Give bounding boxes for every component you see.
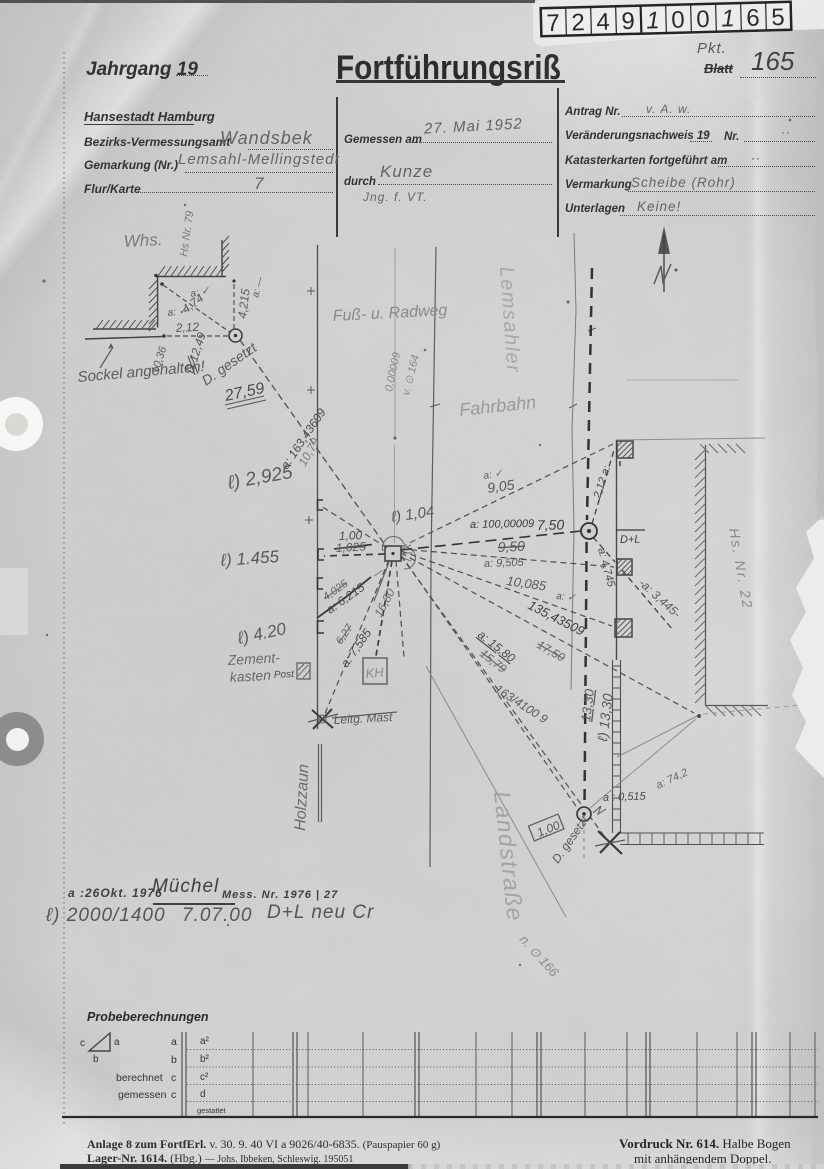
svg-text:a: a — [114, 1037, 120, 1048]
svg-text:c²: c² — [200, 1072, 209, 1083]
svg-text:b: b — [93, 1054, 99, 1065]
svg-text:gestattet: gestattet — [197, 1106, 227, 1115]
svg-text:c: c — [80, 1038, 85, 1049]
svg-text:c: c — [171, 1089, 176, 1101]
svg-text:gemessen: gemessen — [118, 1089, 167, 1101]
svg-text:b: b — [171, 1054, 177, 1066]
svg-text:b²: b² — [200, 1054, 210, 1065]
svg-text:berechnet: berechnet — [116, 1072, 163, 1084]
svg-text:c: c — [171, 1072, 176, 1084]
svg-text:a: a — [171, 1036, 177, 1048]
svg-text:a²: a² — [200, 1036, 210, 1047]
svg-text:d: d — [200, 1089, 206, 1100]
